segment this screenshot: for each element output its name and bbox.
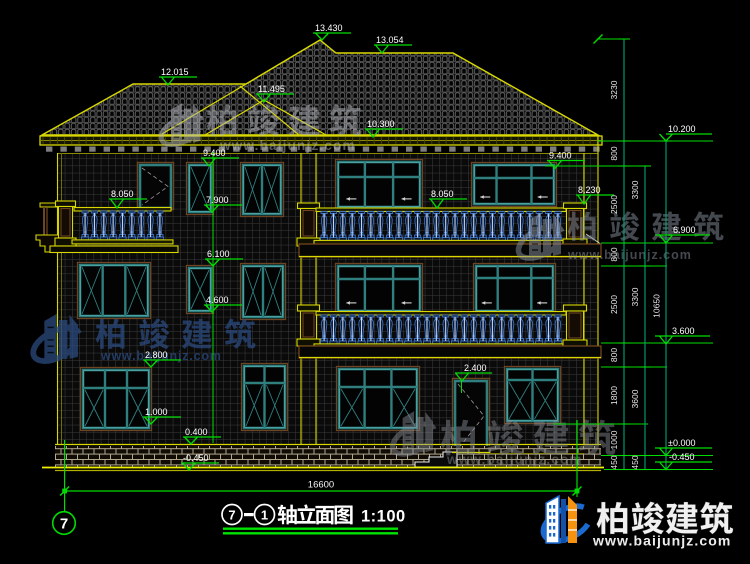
svg-text:1000: 1000 (609, 430, 619, 449)
svg-text:13.430: 13.430 (315, 23, 343, 33)
svg-text:12.015: 12.015 (161, 67, 189, 77)
svg-text:1:100: 1:100 (361, 508, 406, 526)
svg-text:11.495: 11.495 (258, 84, 285, 94)
svg-text:www.baijunjz.com: www.baijunjz.com (219, 138, 356, 153)
svg-text:-0.450: -0.450 (183, 453, 209, 463)
svg-text:1800: 1800 (609, 386, 619, 405)
svg-text:13.054: 13.054 (376, 35, 404, 45)
svg-text:2500: 2500 (609, 195, 619, 214)
svg-text:8.230: 8.230 (578, 185, 601, 195)
svg-text:8.050: 8.050 (111, 189, 134, 199)
svg-text:16600: 16600 (308, 480, 334, 491)
svg-text:0.400: 0.400 (185, 427, 208, 437)
svg-text:9.400: 9.400 (203, 148, 226, 158)
svg-text:3300: 3300 (630, 180, 640, 199)
svg-text:www.baijunjz.com: www.baijunjz.com (567, 248, 692, 262)
svg-text:6.900: 6.900 (673, 225, 696, 235)
svg-text:1.000: 1.000 (145, 407, 168, 417)
svg-text:10650: 10650 (652, 294, 662, 318)
svg-text:7: 7 (228, 508, 235, 523)
svg-text:2500: 2500 (609, 295, 619, 314)
svg-text:2.400: 2.400 (464, 363, 487, 373)
svg-text:4.600: 4.600 (206, 295, 229, 305)
svg-text:3.600: 3.600 (672, 326, 695, 336)
svg-text:1: 1 (261, 508, 268, 523)
svg-text:10.200: 10.200 (668, 124, 696, 134)
svg-text:7.900: 7.900 (206, 195, 229, 205)
svg-text:9.400: 9.400 (549, 151, 572, 161)
svg-text:800: 800 (609, 146, 619, 160)
svg-text:6.100: 6.100 (207, 249, 230, 259)
svg-text:3230: 3230 (609, 80, 619, 99)
svg-text:2.800: 2.800 (145, 350, 168, 360)
svg-text:10.300: 10.300 (367, 119, 395, 129)
svg-text:3600: 3600 (630, 389, 640, 408)
svg-text:800: 800 (609, 247, 619, 261)
svg-text:3300: 3300 (630, 287, 640, 306)
svg-text:-0.450: -0.450 (669, 452, 695, 462)
svg-text:450: 450 (630, 455, 640, 469)
svg-text:±0.000: ±0.000 (668, 438, 695, 448)
svg-text:www.baijunjz.com: www.baijunjz.com (446, 452, 583, 467)
svg-text:8.050: 8.050 (431, 189, 454, 199)
svg-text:800: 800 (609, 348, 619, 362)
svg-text:7: 7 (60, 516, 68, 533)
svg-text:www.baijunjz.com: www.baijunjz.com (592, 533, 731, 549)
svg-text:450: 450 (609, 455, 619, 469)
